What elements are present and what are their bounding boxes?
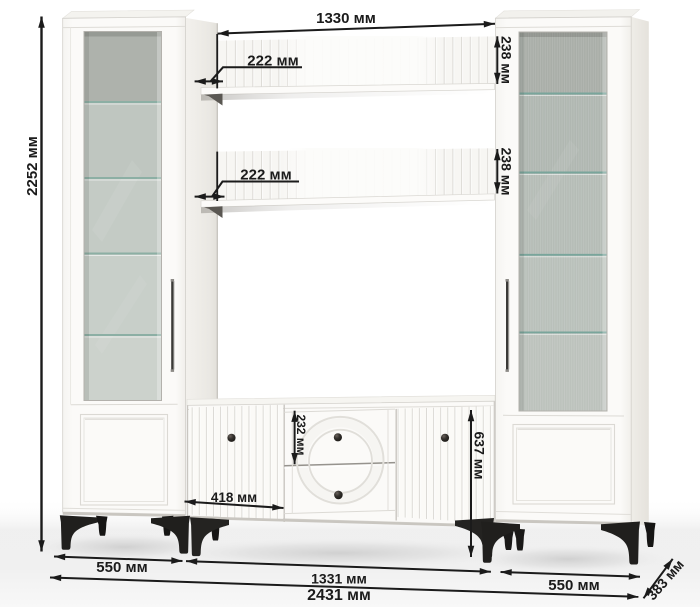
svg-text:238 мм: 238 мм (499, 148, 515, 196)
svg-text:232 мм: 232 мм (294, 414, 308, 455)
svg-text:418 мм: 418 мм (211, 490, 257, 505)
svg-text:550 мм: 550 мм (548, 577, 599, 594)
svg-text:637 мм: 637 мм (472, 432, 488, 480)
svg-text:1331 мм: 1331 мм (311, 571, 367, 587)
svg-text:238 мм: 238 мм (499, 36, 515, 84)
svg-text:2431 мм: 2431 мм (307, 587, 371, 604)
svg-text:1330 мм: 1330 мм (316, 10, 376, 27)
svg-text:550 мм: 550 мм (96, 559, 147, 576)
svg-text:222 мм: 222 мм (240, 167, 291, 184)
svg-text:2252 мм: 2252 мм (24, 136, 41, 196)
svg-text:222 мм: 222 мм (247, 53, 298, 70)
